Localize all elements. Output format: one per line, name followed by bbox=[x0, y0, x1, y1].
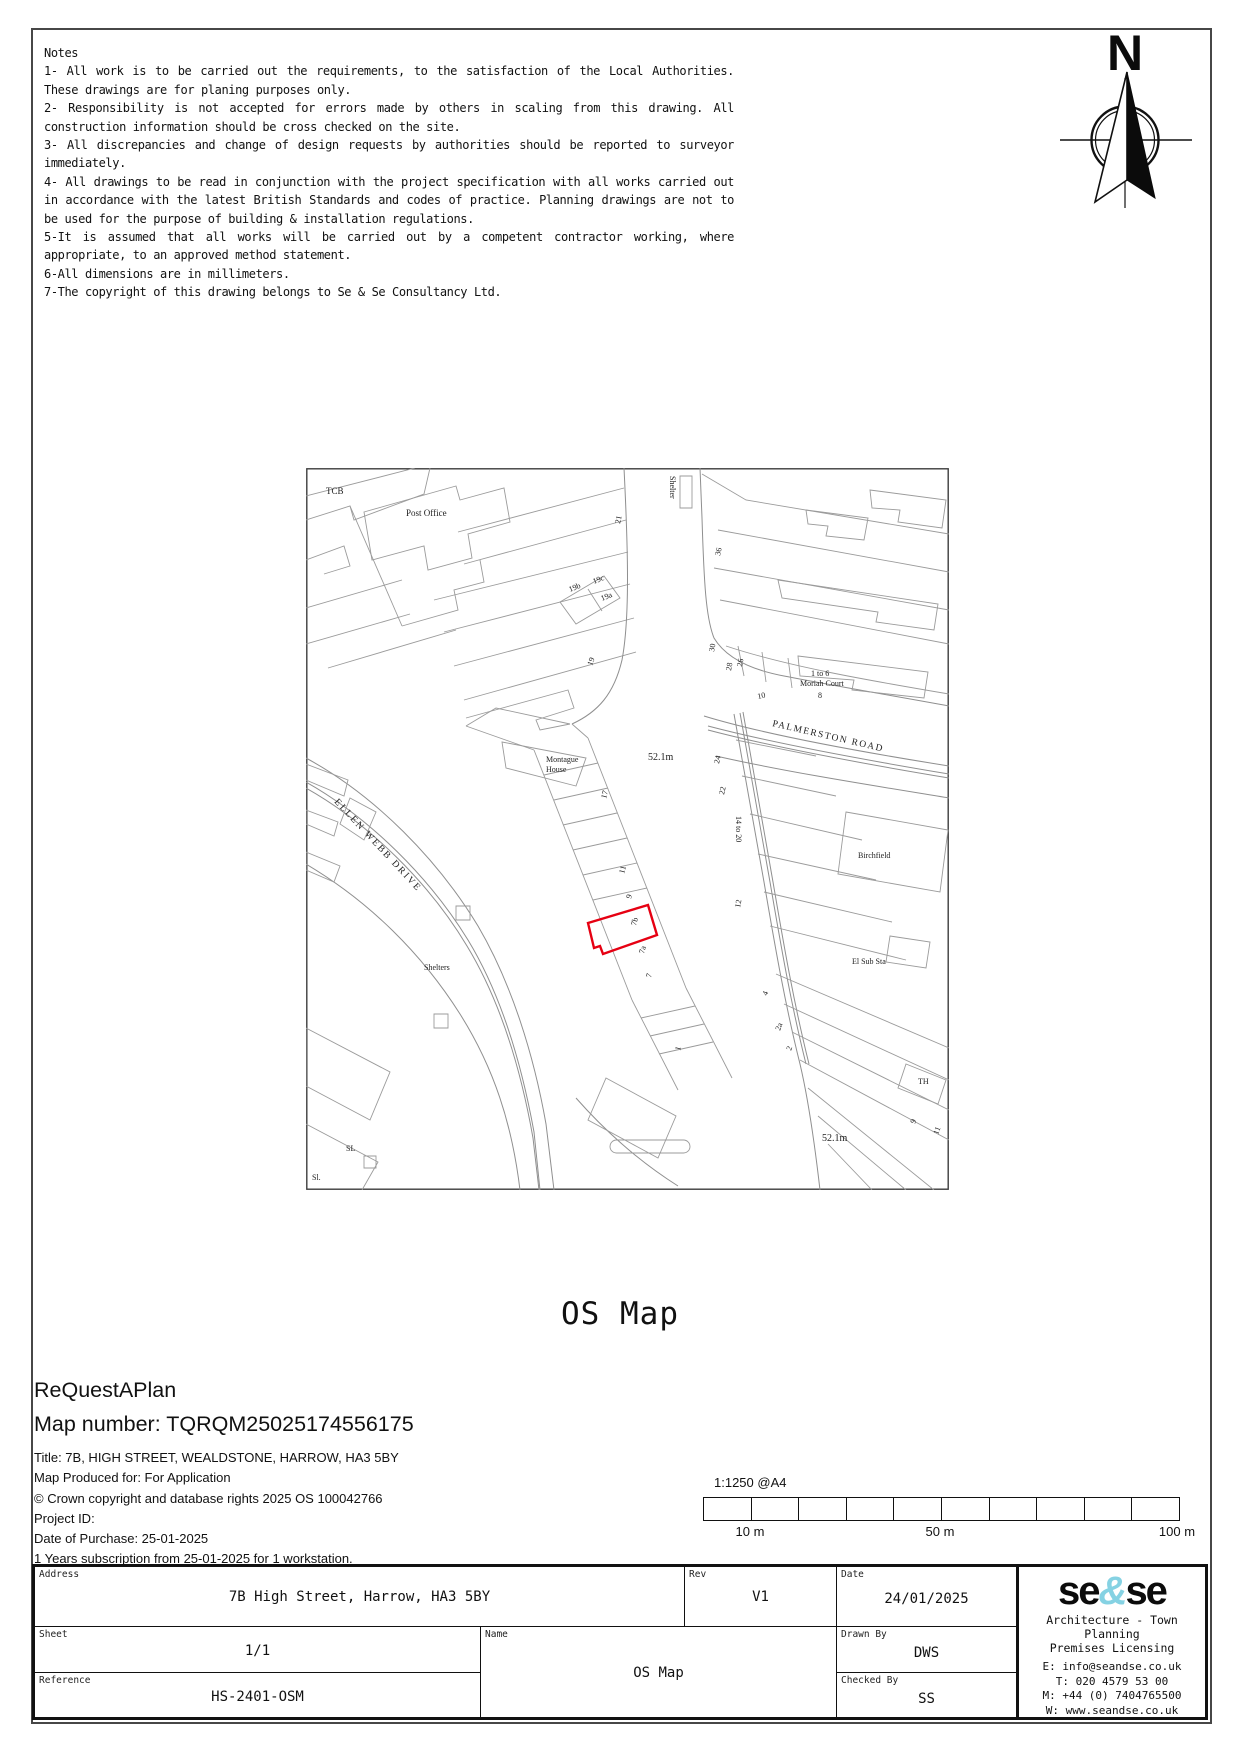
scale-bar-segment bbox=[1037, 1498, 1085, 1520]
scale-ratio: 1:1250 @A4 bbox=[714, 1475, 786, 1490]
note-line: 7-The copyright of this drawing belongs … bbox=[44, 283, 734, 301]
scale-bar-segment bbox=[752, 1498, 800, 1520]
map-label: Shelters bbox=[424, 963, 450, 972]
checked-by-label: Checked By bbox=[841, 1675, 898, 1686]
map-label: Montague bbox=[546, 755, 579, 764]
logo-ampersand-icon: & bbox=[1099, 1569, 1126, 1613]
address-label: Address bbox=[39, 1569, 79, 1580]
scale-bar-segment bbox=[942, 1498, 990, 1520]
map-label: Birchfield bbox=[858, 851, 890, 860]
notes-title: Notes bbox=[44, 44, 734, 62]
map-provider: ReQuestAPlan bbox=[34, 1378, 176, 1403]
map-project-id: Project ID: bbox=[34, 1511, 95, 1526]
scale-bar-segment bbox=[704, 1498, 752, 1520]
scale-tick-50m: 50 m bbox=[926, 1524, 955, 1539]
sheet-cell: Sheet 1/1 bbox=[35, 1627, 481, 1673]
scale-tick-10m: 10 m bbox=[736, 1524, 765, 1539]
sheet-heading: OS Map bbox=[0, 1296, 1240, 1332]
map-label: Post Office bbox=[406, 508, 447, 518]
note-line: 3- All discrepancies and change of desig… bbox=[44, 136, 734, 173]
map-title-line: Title: 7B, HIGH STREET, WEALDSTONE, HARR… bbox=[34, 1450, 399, 1465]
note-line: 2- Responsibility is not accepted for er… bbox=[44, 99, 734, 136]
rev-label: Rev bbox=[689, 1569, 706, 1580]
logo-tagline-1: Architecture - Town Planning bbox=[1019, 1613, 1205, 1641]
reference-cell: Reference HS-2401-OSM bbox=[35, 1673, 481, 1717]
drawn-by-value: DWS bbox=[837, 1645, 1016, 1661]
name-label: Name bbox=[485, 1629, 508, 1640]
map-label: 26 bbox=[735, 658, 745, 667]
address-cell: Address 7B High Street, Harrow, HA3 5BY bbox=[35, 1567, 685, 1627]
contact-web: W: www.seandse.co.uk bbox=[1019, 1704, 1205, 1719]
map-label: SL bbox=[346, 1144, 355, 1153]
contact-email: E: info@seandse.co.uk bbox=[1019, 1660, 1205, 1675]
map-label: 14 to 20 bbox=[734, 816, 743, 842]
date-label: Date bbox=[841, 1569, 864, 1580]
map-label: 28 bbox=[724, 662, 734, 671]
title-block: Address 7B High Street, Harrow, HA3 5BY … bbox=[32, 1564, 1208, 1720]
map-label: 30 bbox=[707, 643, 717, 652]
contact-mobile: M: +44 (0) 7404765500 bbox=[1019, 1689, 1205, 1704]
scale-bar-segment bbox=[990, 1498, 1038, 1520]
note-line: 5-It is assumed that all works will be c… bbox=[44, 228, 734, 265]
address-value: 7B High Street, Harrow, HA3 5BY bbox=[35, 1589, 684, 1605]
scale-tick-100m: 100 m bbox=[1159, 1524, 1195, 1539]
map-label: 12 bbox=[733, 899, 743, 908]
sheet-label: Sheet bbox=[39, 1629, 68, 1640]
scale-bar-segment bbox=[1132, 1498, 1179, 1520]
contact-tel: T: 020 4579 53 00 bbox=[1019, 1675, 1205, 1690]
map-label: 52.1m bbox=[648, 752, 674, 763]
needle-west-half bbox=[1095, 72, 1127, 202]
map-label: Moriah Court bbox=[800, 679, 845, 688]
map-label: TH bbox=[918, 1077, 929, 1086]
note-line: 1- All work is to be carried out the req… bbox=[44, 62, 734, 99]
scale-bar bbox=[703, 1497, 1180, 1521]
name-value: OS Map bbox=[481, 1665, 836, 1681]
drawing-sheet: Notes 1- All work is to be carried out t… bbox=[0, 0, 1240, 1755]
needle-east-half bbox=[1127, 72, 1155, 198]
north-compass-icon: N bbox=[1050, 30, 1200, 215]
scale-bar-segment bbox=[894, 1498, 942, 1520]
rev-cell: Rev V1 bbox=[685, 1567, 837, 1627]
map-label: TCB bbox=[326, 486, 344, 496]
scale-bar-segment bbox=[799, 1498, 847, 1520]
sheet-value: 1/1 bbox=[35, 1643, 480, 1659]
map-label: House bbox=[546, 765, 567, 774]
drawn-by-cell: Drawn By DWS bbox=[837, 1627, 1019, 1673]
date-cell: Date 24/01/2025 bbox=[837, 1567, 1019, 1627]
scale-bar-segment bbox=[847, 1498, 895, 1520]
map-label: 1 to 6 bbox=[811, 669, 829, 678]
scale-bar-segment bbox=[1085, 1498, 1133, 1520]
drawn-by-label: Drawn By bbox=[841, 1629, 887, 1640]
logo-part1: se bbox=[1058, 1569, 1099, 1613]
checked-by-value: SS bbox=[837, 1691, 1016, 1707]
notes-block: Notes 1- All work is to be carried out t… bbox=[44, 44, 734, 302]
checked-by-cell: Checked By SS bbox=[837, 1673, 1019, 1717]
name-cell: Name OS Map bbox=[481, 1627, 837, 1717]
rev-value: V1 bbox=[685, 1589, 836, 1605]
map-label: 8 bbox=[818, 691, 822, 700]
map-label: 52.1m bbox=[822, 1133, 848, 1144]
os-map-extract: TCBPost OfficeShelter213619b19c19a193028… bbox=[306, 468, 949, 1190]
note-line: 4- All drawings to be read in conjunctio… bbox=[44, 173, 734, 228]
map-label: El Sub Sta bbox=[852, 957, 886, 966]
map-label: Sl. bbox=[312, 1173, 321, 1182]
map-produced-for: Map Produced for: For Application bbox=[34, 1470, 231, 1485]
date-value: 24/01/2025 bbox=[837, 1591, 1016, 1607]
reference-value: HS-2401-OSM bbox=[35, 1689, 480, 1705]
logo-part2: se bbox=[1125, 1569, 1166, 1613]
note-line: 6-All dimensions are in millimeters. bbox=[44, 265, 734, 283]
map-purchase-date: Date of Purchase: 25-01-2025 bbox=[34, 1531, 208, 1546]
company-logo-cell: se&se Architecture - Town Planning Premi… bbox=[1019, 1567, 1205, 1717]
reference-label: Reference bbox=[39, 1675, 90, 1686]
north-label: N bbox=[1107, 30, 1143, 81]
logo-tagline-2: Premises Licensing bbox=[1019, 1641, 1205, 1655]
map-label: Shelter bbox=[668, 476, 677, 499]
map-number: Map number: TQRQM25025174556175 bbox=[34, 1412, 414, 1437]
company-logo: se&se bbox=[1019, 1569, 1205, 1613]
map-copyright: © Crown copyright and database rights 20… bbox=[34, 1491, 383, 1506]
